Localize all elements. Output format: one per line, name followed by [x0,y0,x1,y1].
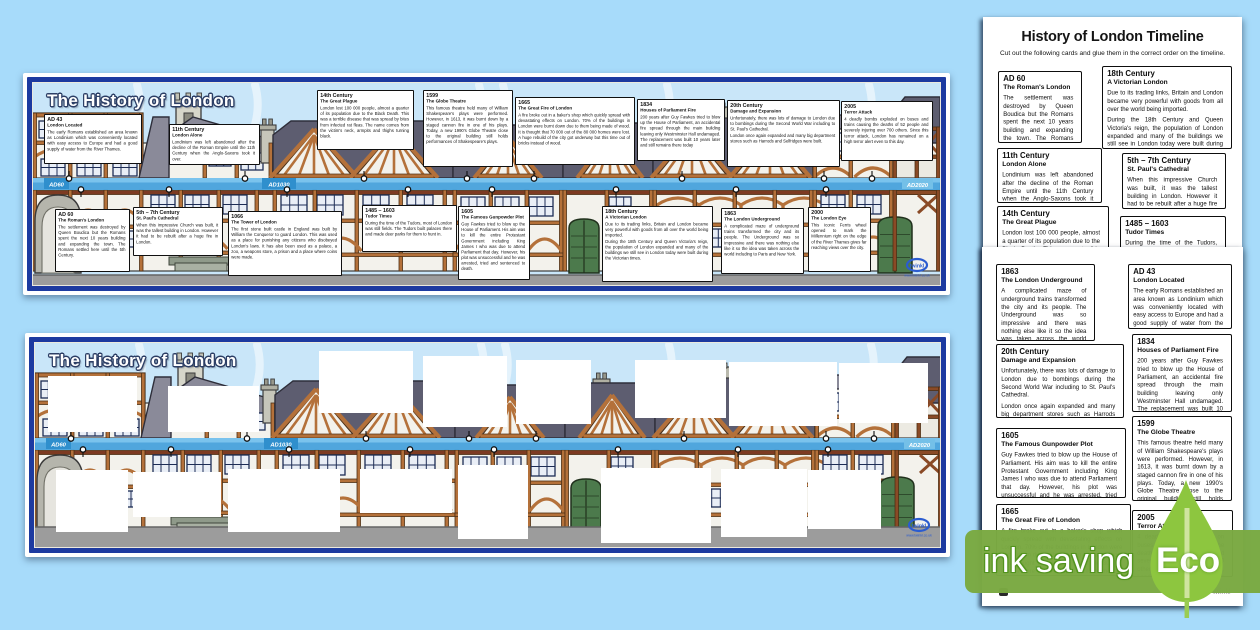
svg-text:AD2020: AD2020 [908,443,931,449]
svg-text:AD60: AD60 [50,443,67,449]
svg-text:www.twinkl.co.uk: www.twinkl.co.uk [906,534,932,538]
svg-text:www.twinkl.co.uk: www.twinkl.co.uk [904,274,930,278]
svg-text:AD60: AD60 [48,183,65,189]
svg-text:twinkl: twinkl [912,524,927,530]
svg-text:twinkl: twinkl [910,264,925,270]
svg-text:AD2020: AD2020 [906,183,929,189]
